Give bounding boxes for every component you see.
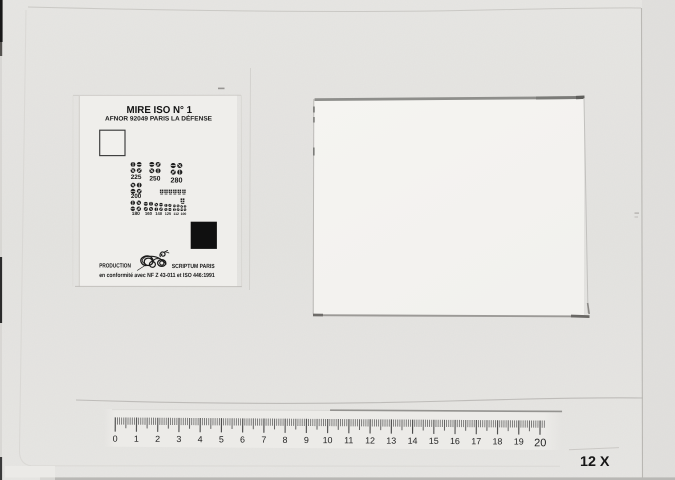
svg-text:PRODUCTION: PRODUCTION — [99, 262, 131, 269]
svg-text:MIRE ISO N° 1: MIRE ISO N° 1 — [127, 105, 193, 116]
svg-text:2: 2 — [155, 434, 160, 444]
svg-text:280: 280 — [171, 175, 183, 184]
svg-text:4: 4 — [198, 434, 203, 444]
svg-text:140: 140 — [155, 211, 163, 216]
svg-text:9: 9 — [304, 435, 309, 445]
svg-text:16: 16 — [450, 436, 460, 446]
svg-text:13: 13 — [386, 436, 396, 446]
svg-text:3: 3 — [176, 434, 181, 444]
svg-text:19: 19 — [514, 437, 524, 447]
svg-text:17: 17 — [471, 436, 481, 446]
svg-text:11: 11 — [344, 435, 353, 445]
svg-text:8: 8 — [283, 435, 288, 445]
svg-text:10: 10 — [323, 435, 333, 445]
svg-text:100: 100 — [181, 212, 187, 216]
svg-text:1: 1 — [134, 434, 139, 444]
svg-text:200: 200 — [131, 193, 142, 200]
svg-text:160: 160 — [145, 211, 153, 216]
svg-text:125: 125 — [165, 212, 171, 216]
svg-text:18: 18 — [492, 436, 502, 446]
svg-text:20: 20 — [534, 437, 546, 449]
svg-text:112: 112 — [173, 212, 179, 216]
svg-text:180: 180 — [132, 211, 140, 217]
svg-text:7: 7 — [261, 435, 266, 445]
svg-text:12: 12 — [365, 435, 375, 445]
svg-text:250: 250 — [149, 176, 160, 183]
svg-text:15: 15 — [429, 436, 439, 446]
svg-text:AFNOR 92049 PARIS LA DÉFENSE: AFNOR 92049 PARIS LA DÉFENSE — [105, 114, 212, 122]
svg-text:en conformité avec NF Z 43-011: en conformité avec NF Z 43-011 et ISO 44… — [99, 272, 215, 279]
svg-text:12 X: 12 X — [580, 453, 610, 469]
svg-text:5: 5 — [219, 434, 224, 444]
svg-text:14: 14 — [408, 436, 418, 446]
svg-text:225: 225 — [131, 174, 142, 181]
svg-text:6: 6 — [240, 435, 245, 445]
svg-text:SCRIPTUM PARIS: SCRIPTUM PARIS — [172, 263, 215, 270]
svg-text:0: 0 — [113, 434, 118, 444]
